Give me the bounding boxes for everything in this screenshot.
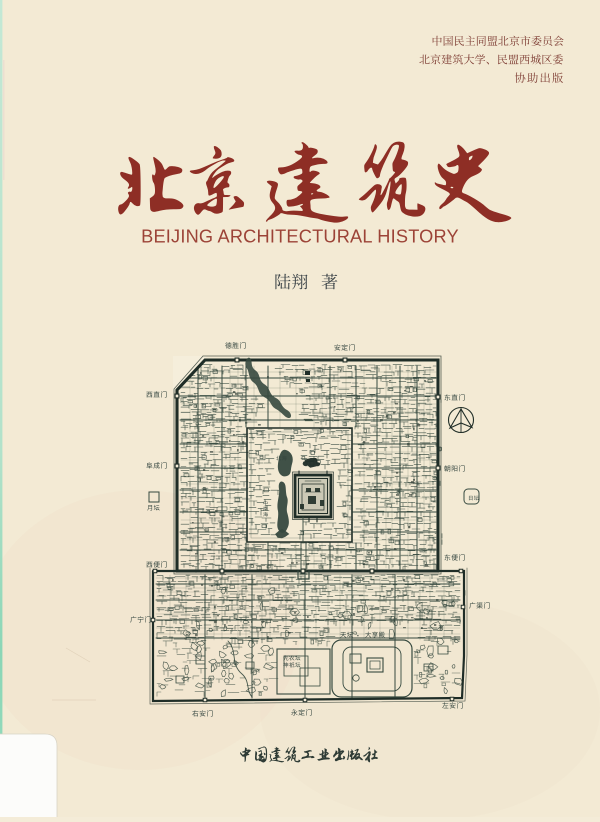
svg-text:BEIJING ARCHITECTURAL HISTORY: BEIJING ARCHITECTURAL HISTORY [141,227,459,247]
